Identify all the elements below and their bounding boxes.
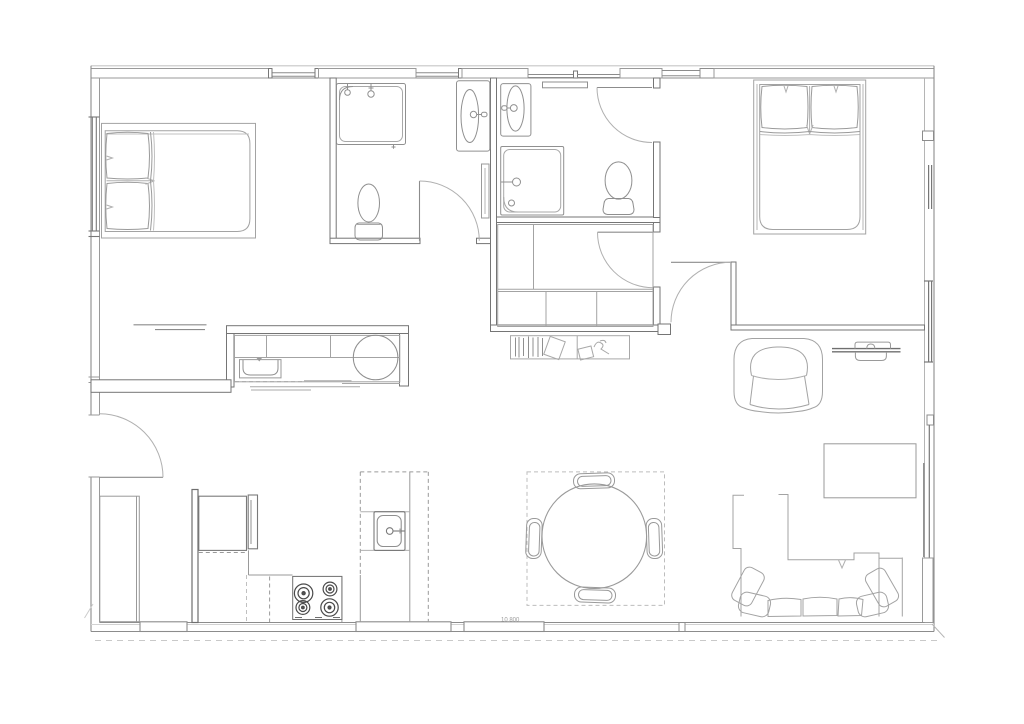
- svg-text:10 800: 10 800: [501, 618, 520, 624]
